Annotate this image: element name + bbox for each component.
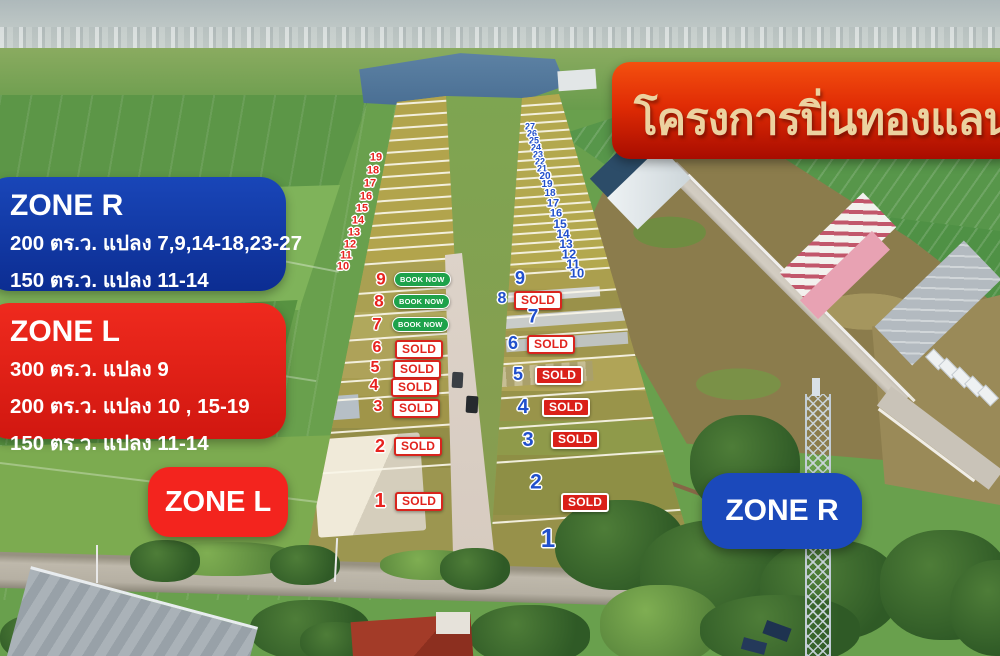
plot-status-badge-zone-r-6: SOLD — [527, 335, 575, 354]
plot-number-zone-r-2: 2 — [530, 472, 542, 493]
zone-r-info-line: 150 ตร.ว. แปลง 11-14 — [0, 260, 286, 297]
plot-status-badge-zone-l-7: BOOK NOW — [392, 317, 449, 332]
plot-status-badge-zone-l-5: SOLD — [393, 360, 441, 379]
zone-l-marker: ZONE L — [148, 467, 288, 537]
plot-status-badge-zone-l-1: SOLD — [395, 492, 443, 511]
plot-status-badge-zone-r-3: SOLD — [551, 430, 599, 449]
plot-number-zone-r-1: 1 — [541, 525, 555, 551]
plot-status-badge-zone-l-3: SOLD — [392, 399, 440, 418]
zone-r-info-line: 200 ตร.ว. แปลง 7,9,14-18,23-27 — [0, 223, 286, 260]
zone-r-info-title: ZONE R — [0, 177, 286, 223]
plot-number-zone-l-10: 10 — [337, 262, 349, 273]
project-aerial-map: 191817161514131211109BOOK NOW8BOOK NOW7B… — [0, 0, 1000, 656]
plot-number-zone-r-5: 5 — [513, 365, 523, 383]
plot-status-badge-zone-l-8: BOOK NOW — [393, 294, 450, 309]
zone-l-info-title: ZONE L — [0, 303, 286, 349]
plot-number-zone-l-14: 14 — [352, 216, 364, 227]
plot-number-zone-l-2: 2 — [375, 437, 385, 455]
plot-status-badge-zone-r-5: SOLD — [535, 366, 583, 385]
plot-status-badge-zone-l-4: SOLD — [391, 378, 439, 397]
plot-status-badge-zone-l-9: BOOK NOW — [394, 272, 451, 287]
plot-number-zone-l-13: 13 — [348, 228, 360, 239]
zone-r-info-box: ZONE R 200 ตร.ว. แปลง 7,9,14-18,23-27 15… — [0, 177, 286, 291]
plot-number-zone-l-5: 5 — [371, 360, 380, 376]
plot-status-badge-zone-l-2: SOLD — [394, 437, 442, 456]
plot-number-zone-l-9: 9 — [376, 271, 385, 288]
plot-number-zone-r-9: 9 — [515, 269, 525, 287]
plot-number-zone-r-8: 8 — [498, 291, 507, 307]
plot-number-zone-l-1: 1 — [374, 491, 385, 511]
plot-number-zone-l-18: 18 — [367, 166, 379, 177]
project-title: โครงการปิ่นทองแลนด์ — [612, 62, 1000, 154]
plot-status-badge-zone-r-2: SOLD — [561, 493, 609, 512]
zone-l-info-line: 300 ตร.ว. แปลง 9 — [0, 349, 286, 386]
plot-number-zone-r-3: 3 — [522, 430, 533, 450]
zone-l-info-line: 150 ตร.ว. แปลง 11-14 — [0, 423, 286, 460]
zone-l-marker-label: ZONE L — [165, 486, 271, 519]
plot-number-zone-r-10: 10 — [570, 267, 584, 280]
plot-number-zone-r-7: 7 — [528, 308, 539, 327]
plot-number-zone-l-17: 17 — [364, 179, 376, 190]
zone-r-marker-label: ZONE R — [725, 494, 838, 528]
plot-number-zone-l-7: 7 — [372, 316, 381, 333]
plot-number-zone-r-4: 4 — [517, 397, 528, 417]
plot-status-badge-zone-r-4: SOLD — [542, 398, 590, 417]
plot-status-badge-zone-l-6: SOLD — [395, 340, 443, 359]
plot-number-zone-l-4: 4 — [370, 378, 379, 394]
plot-number-zone-l-8: 8 — [374, 293, 383, 310]
project-title-banner: โครงการปิ่นทองแลนด์ — [612, 62, 1000, 159]
plot-number-zone-l-15: 15 — [356, 204, 368, 215]
plot-number-zone-l-6: 6 — [373, 340, 382, 356]
plot-number-zone-l-3: 3 — [374, 399, 383, 415]
plot-number-zone-r-6: 6 — [508, 334, 518, 352]
zone-l-info-box: ZONE L 300 ตร.ว. แปลง 9 200 ตร.ว. แปลง 1… — [0, 303, 286, 439]
plot-number-zone-l-19: 19 — [370, 153, 382, 164]
plot-number-zone-l-16: 16 — [360, 192, 372, 203]
zone-r-marker: ZONE R — [702, 473, 862, 549]
zone-l-info-line: 200 ตร.ว. แปลง 10 , 15-19 — [0, 386, 286, 423]
